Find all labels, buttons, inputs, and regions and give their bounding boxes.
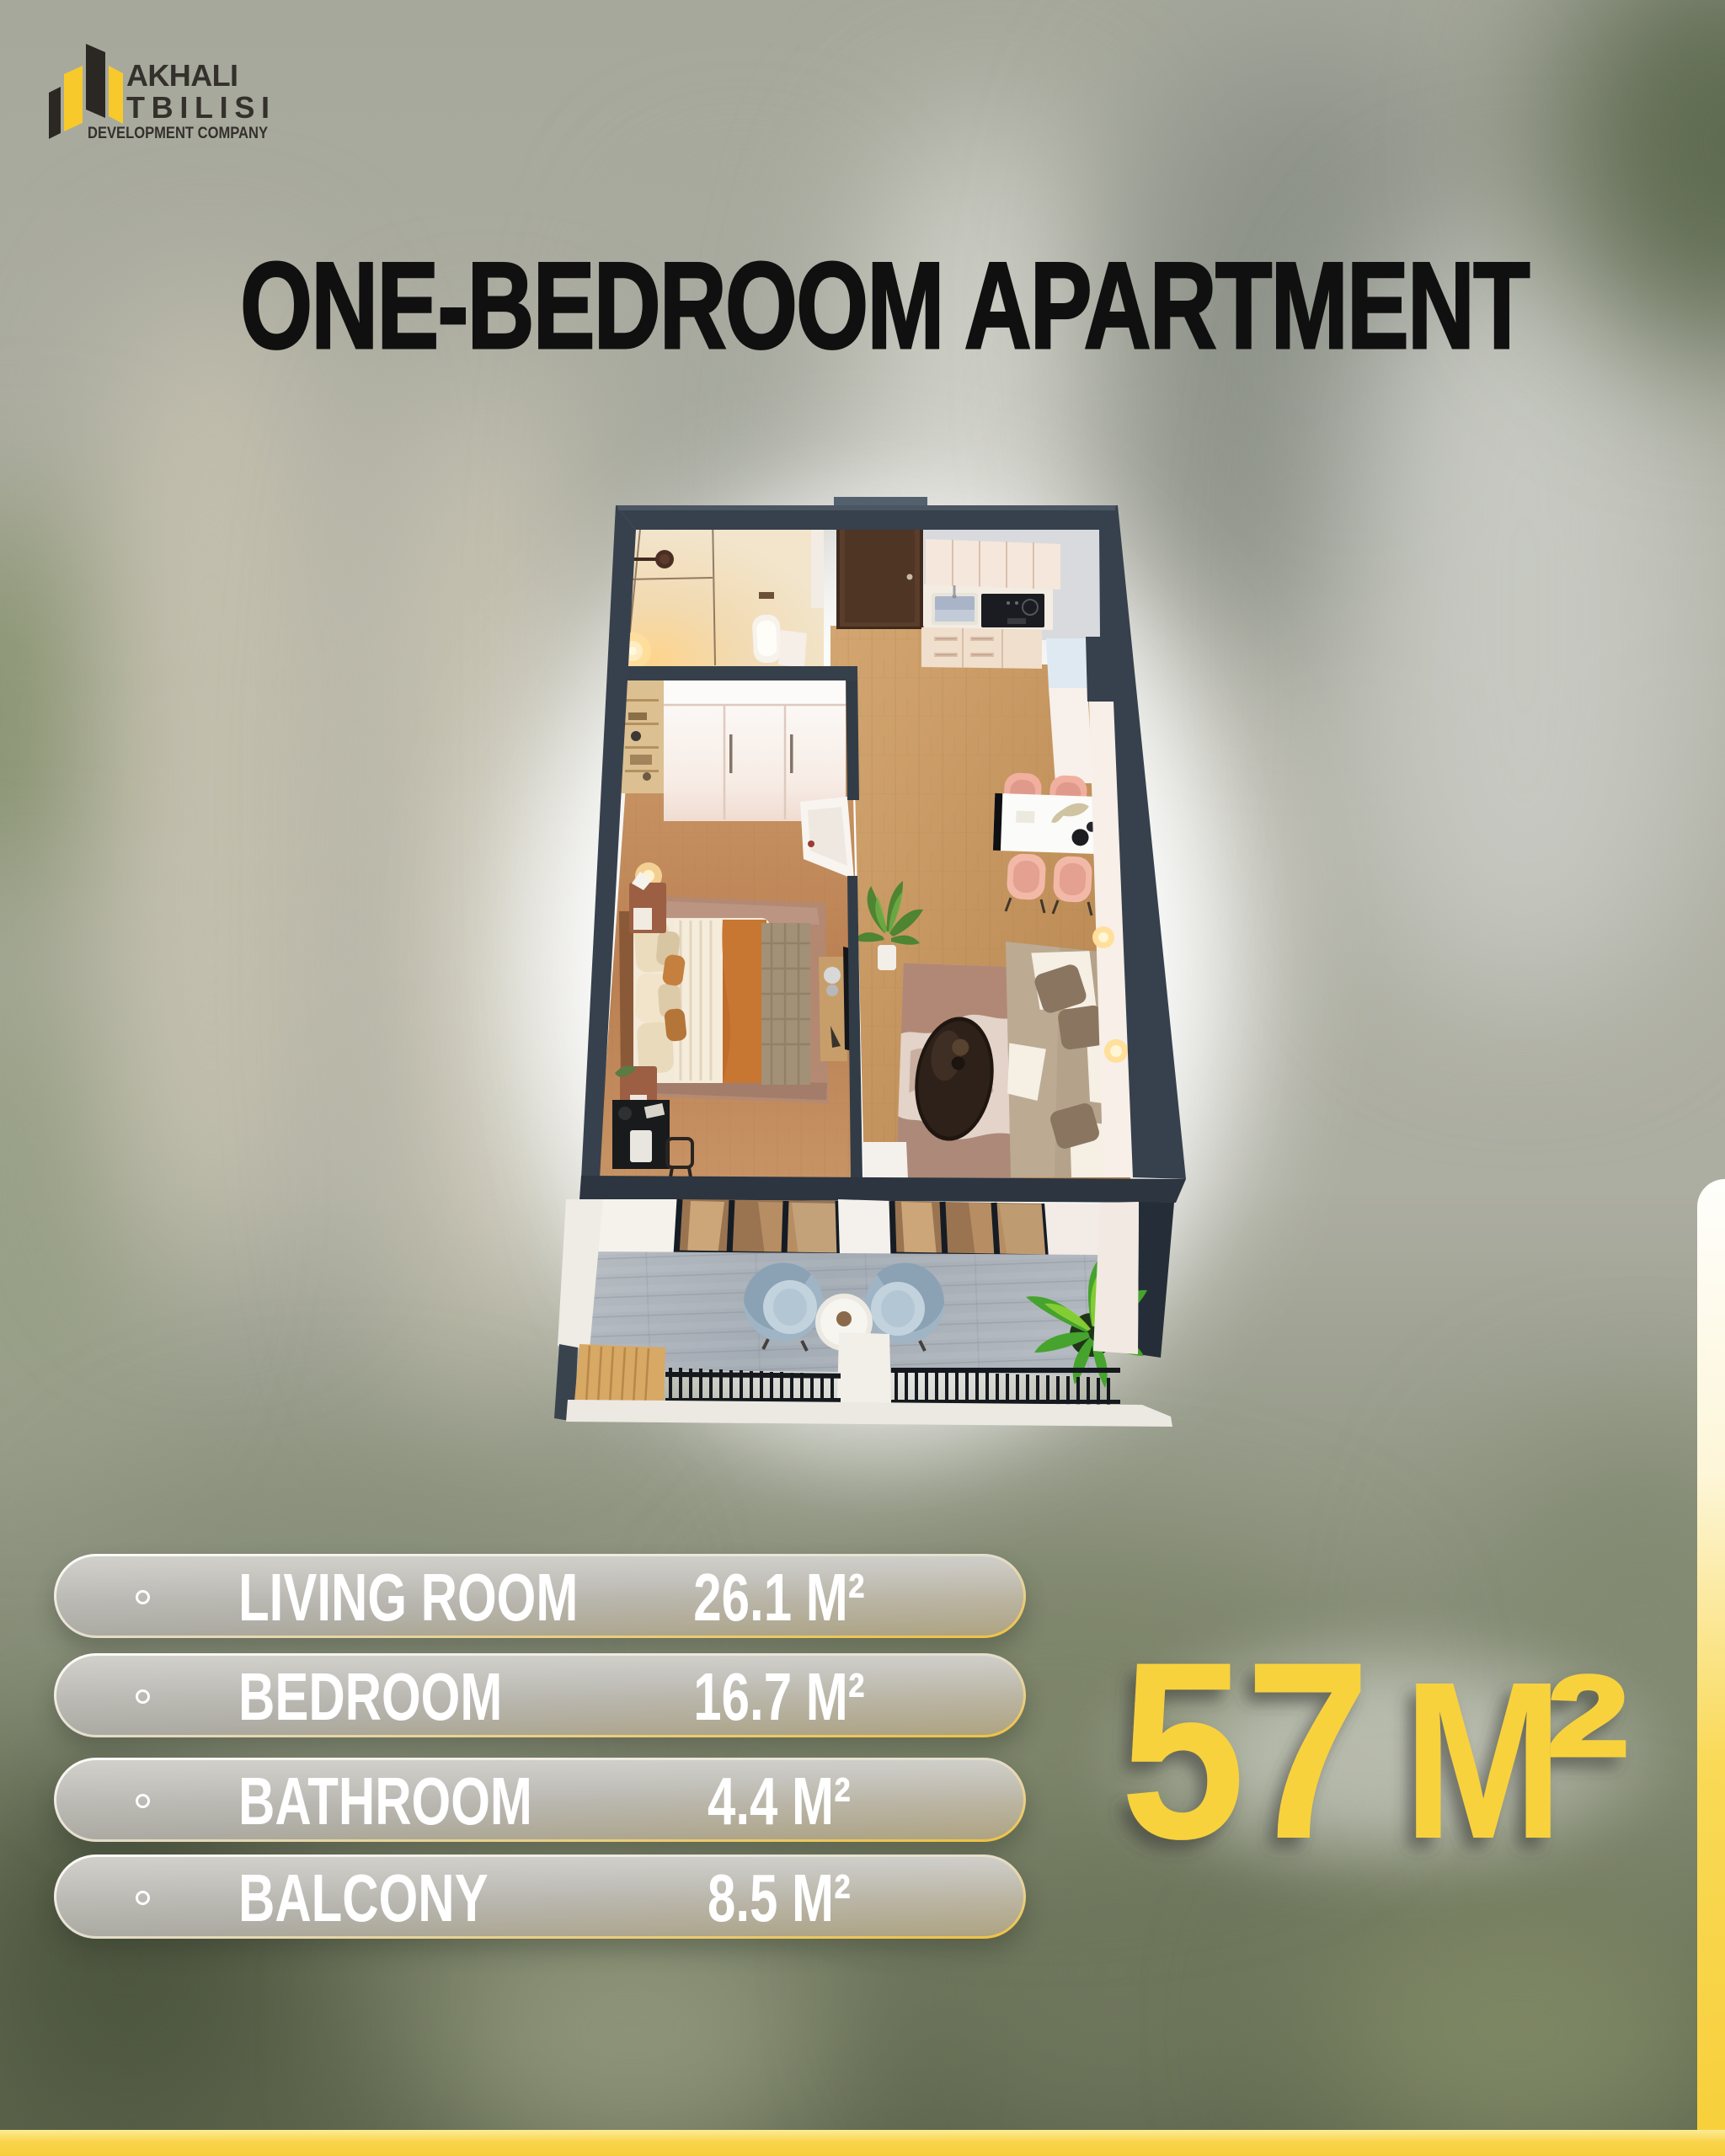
svg-text:TBILISI: TBILISI xyxy=(126,90,270,125)
svg-text:57: 57 xyxy=(1120,1617,1370,1892)
svg-text:DEVELOPMENT COMPANY: DEVELOPMENT COMPANY xyxy=(88,125,268,142)
svg-text:AKHALI: AKHALI xyxy=(126,58,238,93)
svg-text:2: 2 xyxy=(1548,1652,1629,1780)
svg-text:M: M xyxy=(1403,1636,1563,1886)
